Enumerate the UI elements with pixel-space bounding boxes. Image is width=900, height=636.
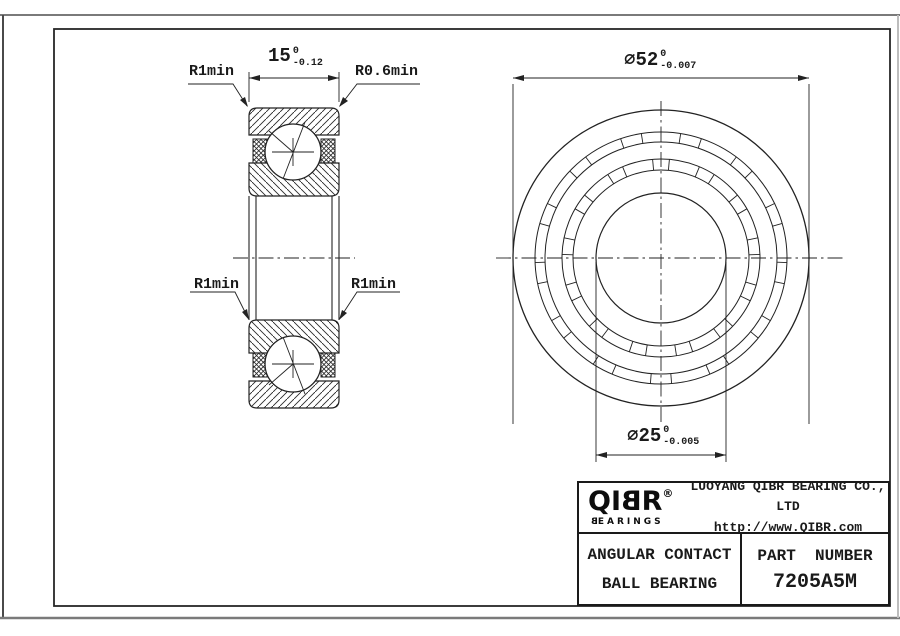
product-type-line2: BALL BEARING <box>602 570 717 599</box>
outer-dia-text: ⌀520-0.007 <box>624 48 696 71</box>
title-block: QIBR® BEARINGS LUOYANG QIBR BEARING CO.,… <box>577 481 890 606</box>
width-dimension <box>249 72 339 102</box>
outer-dia-value: ⌀52 <box>624 48 658 71</box>
outer-dia-tol-upper: 0 <box>660 49 696 61</box>
logo-r: R <box>642 486 663 517</box>
product-type-cell: ANGULAR CONTACT BALL BEARING <box>579 534 742 606</box>
bore-dia-tol-lower: -0.005 <box>663 437 699 449</box>
width-tol-upper: 0 <box>293 46 323 58</box>
logo-b-mirrored: B <box>621 488 642 515</box>
radius-label-mid-left: R1min <box>194 276 239 293</box>
drawing-sheet: R1min 150-0.12 R0.6min R1min R1min ⌀520-… <box>0 0 900 636</box>
registered-mark: ® <box>662 487 673 500</box>
title-block-detail-row: ANGULAR CONTACT BALL BEARING PART NUMBER… <box>579 532 888 606</box>
company-logo: QIBR® BEARINGS <box>579 488 688 527</box>
bore-dia-value: ⌀25 <box>627 424 661 447</box>
width-value: 15 <box>268 45 291 67</box>
radius-label-top-right: R0.6min <box>355 63 418 80</box>
cage-upper-right <box>321 139 335 163</box>
bearings-rest: EARINGS <box>598 517 664 527</box>
cage-lower-right <box>321 353 335 377</box>
part-number-label: PART NUMBER <box>757 547 872 565</box>
bore-dia-tol-upper: 0 <box>663 425 699 437</box>
part-number-value: 7205A5M <box>773 571 857 594</box>
product-type-line1: ANGULAR CONTACT <box>587 541 731 570</box>
outer-dia-tol-lower: -0.007 <box>660 61 696 73</box>
radius-label-mid-right: R1min <box>351 276 396 293</box>
logo-wordmark: QIBR® <box>588 488 688 515</box>
company-info: LUOYANG QIBR BEARING CO., LTD http://www… <box>688 477 888 537</box>
radius-label-top-left: R1min <box>189 63 234 80</box>
logo-bearings-text: BEARINGS <box>588 518 688 527</box>
front-view <box>496 75 846 462</box>
section-view <box>188 72 420 408</box>
company-name: LUOYANG QIBR BEARING CO., LTD <box>688 477 888 517</box>
logo-qi: QI <box>588 486 621 517</box>
part-number-cell: PART NUMBER 7205A5M <box>742 534 888 606</box>
width-tol-lower: -0.12 <box>293 58 323 70</box>
title-block-header-row: QIBR® BEARINGS LUOYANG QIBR BEARING CO.,… <box>579 483 888 532</box>
bore-dia-text: ⌀250-0.005 <box>627 424 699 447</box>
bearings-b-mirrored: B <box>588 518 598 527</box>
width-dimension-text: 150-0.12 <box>268 45 323 68</box>
